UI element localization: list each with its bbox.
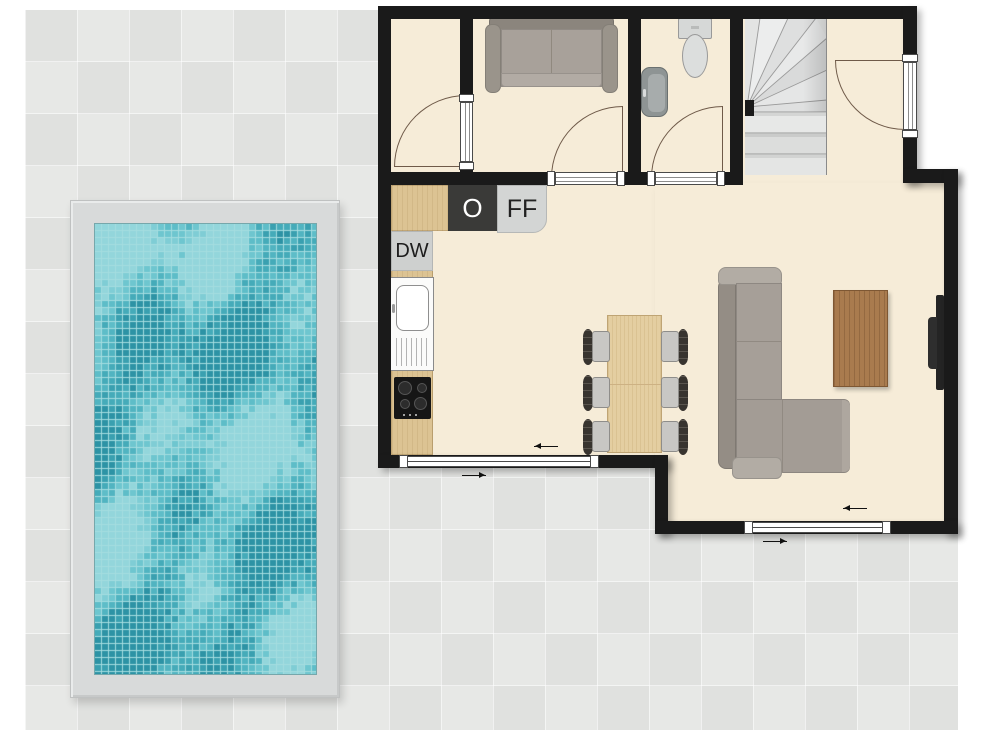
dining-chair: [583, 419, 610, 455]
corner-sofa: [718, 267, 850, 479]
slider-end-block: [399, 455, 408, 468]
door-bathroom: [655, 172, 717, 185]
basin-tap: [643, 89, 646, 97]
hob-burner: [414, 397, 427, 410]
hob-control: [409, 414, 411, 416]
pool-water: [95, 224, 316, 674]
wash-basin: [641, 67, 668, 117]
corner-sofa-seam: [736, 341, 782, 342]
chair-seat: [661, 331, 679, 362]
wall-bathroom-stairs: [730, 19, 743, 185]
door-lounge: [555, 172, 617, 185]
sliding-door-living: [745, 522, 890, 533]
chair-back: [678, 375, 688, 411]
door-leaf-lounge: [622, 106, 623, 178]
corner-sofa-arm-bottom: [732, 457, 782, 479]
dining-chair: [583, 375, 610, 411]
sink-tap: [392, 304, 395, 313]
dining-chair: [661, 375, 688, 411]
oven-label: O: [462, 193, 482, 224]
chair-seat: [592, 331, 610, 362]
corner-sofa-chaise-front: [842, 400, 850, 472]
hob: [394, 377, 431, 419]
fridge-freezer-unit: FF: [497, 185, 547, 233]
dining-table: [607, 315, 662, 453]
chair-seat: [592, 421, 610, 452]
winder-staircase: [745, 18, 827, 175]
loveseat-arm-left: [485, 24, 501, 93]
oven-unit: O: [448, 185, 497, 231]
door-entrance: [903, 62, 917, 130]
door-leaf-bathroom: [722, 106, 723, 178]
sliding-door-kitchen: [400, 456, 598, 467]
door-hinge-block: [902, 54, 918, 62]
slide-direction-arrow: [843, 508, 867, 509]
door-leaf-entrance: [835, 60, 905, 61]
coffee-table: [833, 290, 888, 387]
corner-sofa-seat: [736, 283, 782, 401]
hob-burner: [398, 381, 412, 395]
sink-unit: [390, 277, 434, 371]
door-hinge-block: [902, 130, 918, 138]
door-hinge-block: [459, 94, 474, 102]
loveseat: [485, 17, 618, 93]
hob-control: [403, 414, 405, 416]
counter-top: [391, 185, 450, 231]
corner-sofa-seam: [782, 399, 783, 473]
hob-control: [415, 414, 417, 416]
chair-seat: [661, 421, 679, 452]
dishwasher-label: DW: [395, 240, 428, 263]
wall-lounge-bathroom: [628, 19, 641, 185]
door-hinge-block: [617, 171, 625, 186]
chair-seat: [592, 377, 610, 408]
wall-right-lower: [944, 169, 958, 534]
loveseat-arm-right: [602, 24, 618, 93]
slider-end-block: [744, 521, 753, 534]
stair-newel-post: [745, 100, 754, 116]
wall-left: [378, 6, 391, 468]
sink-drainer: [396, 338, 429, 366]
dining-chair: [661, 419, 688, 455]
slider-end-block: [590, 455, 599, 468]
tv: [936, 295, 944, 390]
loveseat-cushion-front: [501, 73, 602, 87]
wall-top: [378, 6, 917, 19]
hob-burner: [417, 383, 427, 393]
toilet-bowl: [682, 34, 708, 78]
door-hall: [460, 102, 473, 162]
toilet-flush-button: [691, 26, 699, 29]
hob-burner: [400, 399, 410, 409]
chair-back: [678, 329, 688, 365]
slide-direction-arrow: [763, 541, 787, 542]
table-seam: [608, 384, 661, 385]
door-hinge-block: [717, 171, 725, 186]
door-hinge-block: [547, 171, 555, 186]
sink-basin: [396, 285, 429, 331]
corner-sofa-back: [718, 279, 736, 469]
dining-chair: [661, 329, 688, 365]
background-mask: [917, 10, 958, 169]
door-hinge-block: [459, 162, 474, 170]
fridge-freezer-label: FF: [507, 195, 538, 224]
tv-screen: [928, 317, 937, 369]
dishwasher-unit: DW: [391, 231, 433, 271]
door-leaf-hall: [394, 166, 466, 167]
chair-seat: [661, 377, 679, 408]
door-hinge-block: [647, 171, 655, 186]
wash-basin-bowl: [648, 74, 665, 112]
chair-back: [678, 419, 688, 455]
slider-end-block: [882, 521, 891, 534]
floor-plan: O FF DW: [0, 0, 1000, 750]
slide-direction-arrow: [534, 446, 558, 447]
slide-direction-arrow: [462, 475, 486, 476]
dining-chair: [583, 329, 610, 365]
